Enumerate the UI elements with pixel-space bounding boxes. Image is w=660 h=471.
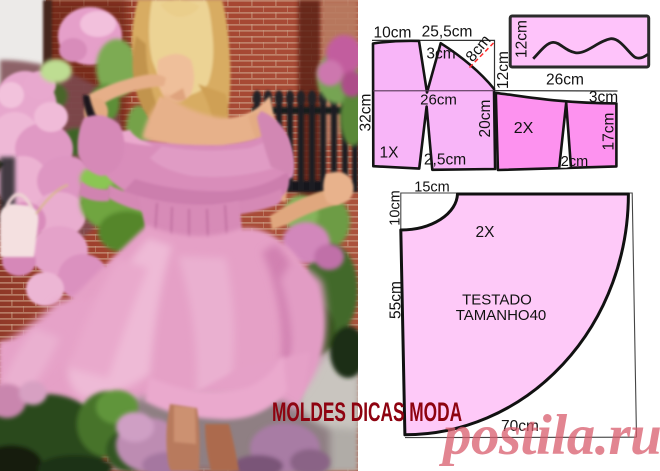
svg-text:32cm: 32cm bbox=[358, 94, 375, 132]
svg-text:26cm: 26cm bbox=[420, 92, 457, 109]
svg-text:25,5cm: 25,5cm bbox=[422, 24, 473, 41]
svg-text:12cm: 12cm bbox=[514, 20, 531, 58]
svg-text:2,5cm: 2,5cm bbox=[424, 152, 466, 169]
svg-text:2cm: 2cm bbox=[561, 154, 588, 170]
svg-text:55cm: 55cm bbox=[388, 281, 405, 319]
svg-text:10cm: 10cm bbox=[388, 190, 404, 225]
svg-text:17cm: 17cm bbox=[601, 113, 618, 151]
svg-text:TESTADO: TESTADO bbox=[462, 292, 532, 309]
svg-text:1X: 1X bbox=[380, 145, 400, 162]
svg-text:12cm: 12cm bbox=[495, 51, 512, 89]
svg-text:26cm: 26cm bbox=[546, 72, 584, 89]
svg-text:3cm: 3cm bbox=[426, 46, 455, 63]
svg-text:2X: 2X bbox=[476, 224, 496, 241]
svg-text:TAMANHO40: TAMANHO40 bbox=[456, 307, 547, 324]
svg-text:15cm: 15cm bbox=[414, 180, 449, 196]
svg-text:3cm: 3cm bbox=[589, 89, 618, 106]
svg-text:20cm: 20cm bbox=[477, 100, 494, 138]
svg-text:10cm: 10cm bbox=[374, 25, 412, 42]
svg-text:2X: 2X bbox=[514, 120, 534, 137]
